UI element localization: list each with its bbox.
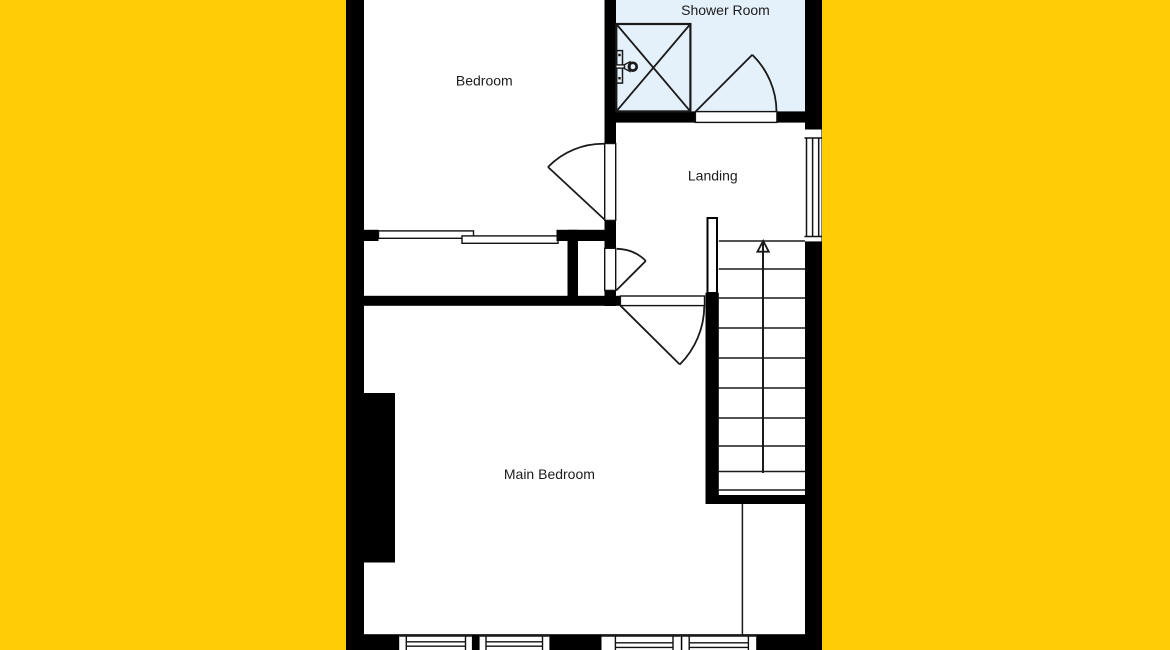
svg-text:Bedroom: Bedroom	[456, 73, 513, 89]
svg-text:Landing: Landing	[688, 168, 738, 184]
svg-text:Main Bedroom: Main Bedroom	[504, 466, 595, 482]
svg-text:Shower Room: Shower Room	[681, 2, 770, 18]
